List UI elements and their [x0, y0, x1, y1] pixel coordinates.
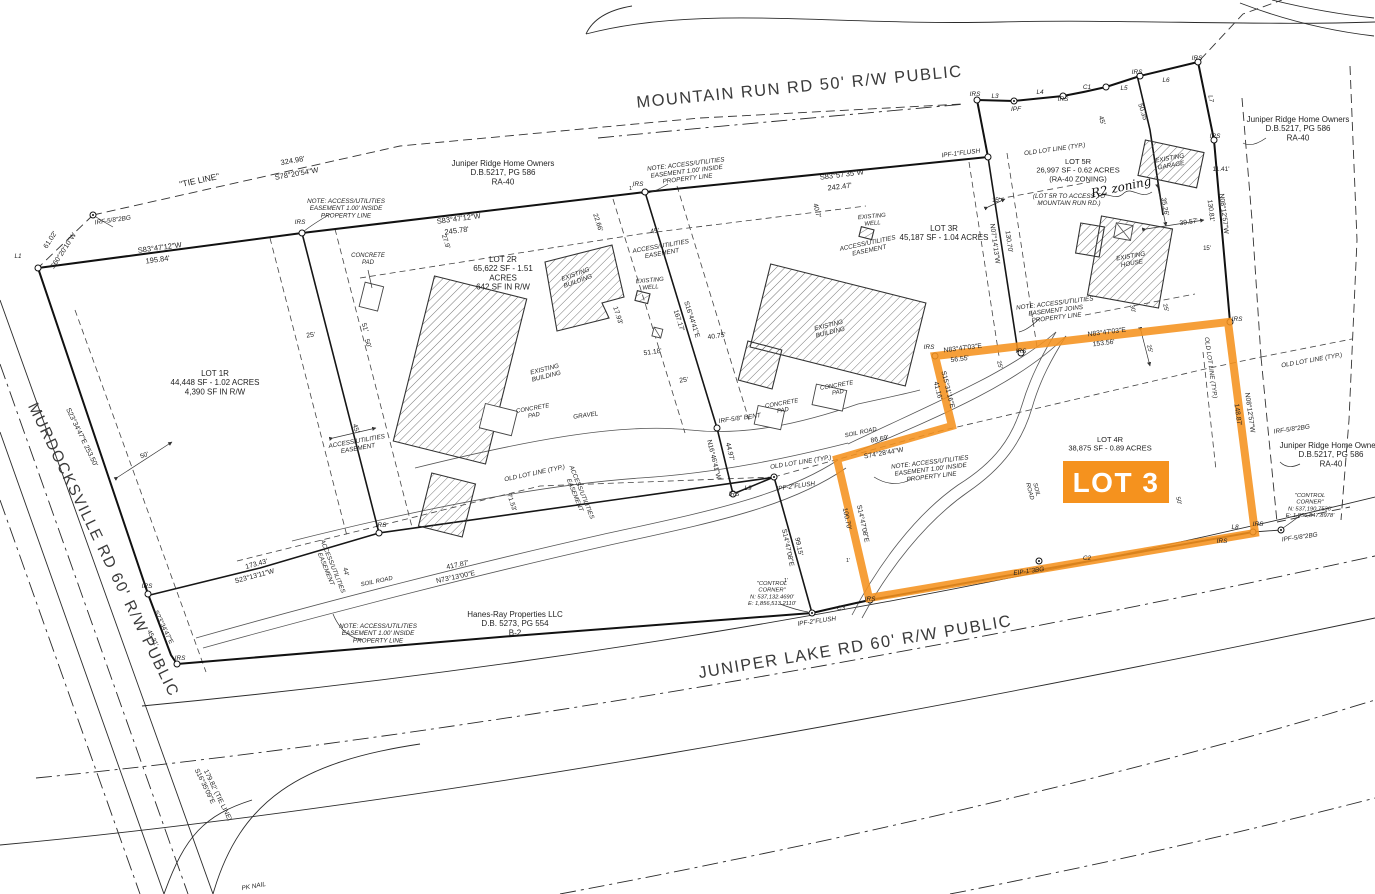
marker-label: IRS: [970, 91, 981, 98]
lot-label: LOT 4R38,875 SF - 0.89 ACRES: [1068, 435, 1151, 453]
lot-label: LOT 2R65,622 SF - 1.51ACRES642 SF IN R/W: [473, 255, 533, 292]
monument-dot: [92, 214, 94, 216]
bearing-label: 25': [995, 360, 1003, 369]
note-label: OLD LOT LINE (TYP.): [1024, 142, 1086, 158]
marker-label: IRS: [295, 219, 306, 226]
marker-label: IPF-2"FLUSH: [776, 480, 816, 492]
lot-label: LOT 1R44,448 SF - 1.02 ACRES4,390 SF IN …: [171, 369, 260, 396]
bearing-label: 45': [1097, 115, 1106, 126]
existing-building-lot3r-step: [738, 341, 782, 389]
bearing-label: 1': [846, 558, 850, 564]
bearing-label: 15': [1203, 246, 1211, 252]
marker-label: IRS: [924, 344, 935, 351]
note-label: NOTE: ACCESS/UTILITIESEASEMENT 1.00' INS…: [339, 623, 418, 644]
marker-label: IRS: [1016, 348, 1027, 355]
bearing-label: S83°57'35"W: [819, 167, 865, 181]
marker-label: L6: [1162, 77, 1170, 84]
bearing-label: 11.41': [1212, 166, 1229, 173]
marker-label: IRS: [729, 491, 740, 498]
marker-label: PK NAIL: [241, 881, 267, 892]
bearing-label: 30': [1128, 304, 1136, 313]
bearing-label: 71.53': [505, 493, 517, 512]
owner-label: Juniper Ridge Home OwnersD.B.5217, PG 58…: [1247, 115, 1350, 142]
road-label: JUNIPER LAKE RD 60' R/W PUBLIC: [697, 612, 1013, 682]
bearing-label: 1': [784, 578, 788, 584]
marker-label: IRS: [1132, 69, 1143, 76]
monument-point: [376, 530, 382, 536]
bearing-label: 17.93': [611, 306, 623, 326]
bearing-label: 25': [1161, 303, 1169, 312]
bearing-label: 61.02': [43, 230, 59, 250]
note-label: CONCRETEPAD: [351, 253, 386, 266]
bearing-label: 50': [1174, 496, 1182, 505]
note-label: CONCRETEPAD: [516, 403, 552, 422]
bearing-label: 167.17': [672, 309, 685, 332]
monument-dot: [811, 612, 813, 614]
note-label: OLD LOT LINE (TYP.): [504, 464, 566, 484]
bearing-label: 40.7': [811, 203, 821, 219]
lot-label: LOT 5R26,997 SF - 0.62 ACRES(RA-40 ZONIN…: [1036, 157, 1119, 183]
marker-label: L7: [1206, 95, 1214, 104]
marker-label: L9: [744, 485, 752, 492]
bearing-label: 35.26': [1159, 197, 1169, 216]
property-boundary: [38, 62, 1281, 664]
note-label: NOTE: ACCESS/UTILITIESEASEMENT 1.00' INS…: [891, 454, 972, 485]
monument-point: [642, 189, 648, 195]
note-label: SOILROAD: [1024, 481, 1041, 502]
monument-point: [1103, 84, 1109, 90]
bearing-label: 417.87': [446, 560, 470, 572]
note-label: GRAVEL: [573, 410, 599, 421]
note-label: NOTE: ACCESS/UTILITIESEASEMENT 1.00' INS…: [647, 156, 728, 187]
marker-label: IRS: [376, 522, 387, 529]
monument-dot: [1013, 100, 1015, 102]
lot-label: LOT 3R45,187 SF - 1.04 ACRES: [900, 224, 989, 242]
bearing-label: 44.97': [724, 442, 735, 461]
existing-building-lot2r-upper: [545, 245, 624, 331]
bearing-label: 15': [992, 198, 1000, 204]
bearing-label: 56.55': [950, 355, 969, 364]
house-window: [1114, 223, 1133, 241]
bearing-label: 44': [341, 567, 350, 577]
monument-dot: [773, 476, 775, 478]
bearing-label: 324.98': [280, 154, 306, 167]
owner-label: Juniper Ridge Home OwnersD.B.5217, PG 58…: [452, 159, 555, 186]
marker-label: C1: [1083, 84, 1092, 91]
note-label: ACCESS/UTILITIESEASEMENT: [560, 464, 595, 524]
bearing-label: 50.35': [1136, 103, 1148, 123]
note-label: NOTE: ACCESS/UTILITIESEASEMENT JOINSPROP…: [1016, 295, 1097, 326]
bearing-label: 130.81': [1206, 199, 1216, 222]
lot3-badge-label[interactable]: LOT 3: [1073, 467, 1160, 498]
marker-label: IRS: [1058, 96, 1069, 103]
bearing-label: 130.70': [1003, 230, 1013, 253]
bearing-label: 45': [650, 227, 660, 235]
marker-label: IRF-5/8"2BG: [94, 215, 131, 227]
bearing-label: 195.84': [145, 253, 171, 265]
monument-dot: [1280, 529, 1282, 531]
road-label: MOUNTAIN RUN RD 50' R/W PUBLIC: [636, 62, 964, 111]
survey-monuments: [35, 59, 1284, 667]
marker-label: IRS: [1210, 133, 1221, 140]
bearing-label: 40.75': [707, 332, 726, 341]
marker-label: IRS: [633, 181, 644, 188]
marker-label: C3: [837, 605, 846, 612]
bearing-label: N16°46'41"W: [705, 439, 723, 481]
marker-label: IRS: [142, 583, 153, 590]
bearing-label: 25': [306, 331, 316, 339]
bearing-label: 51.18': [643, 348, 662, 357]
marker-label: IRS: [865, 596, 876, 603]
marker-label: IRS: [1253, 521, 1264, 528]
marker-label: C2: [1083, 555, 1092, 562]
owner-label: Juniper Ridge Home OwnersD.B.5217, PG 58…: [1280, 441, 1375, 468]
leader-lines: [96, 138, 1302, 640]
marker-label: IRS: [1192, 55, 1203, 62]
note-label: EXISTINGWELL: [858, 213, 887, 228]
marker-label: L4: [1036, 89, 1044, 96]
small-utility-box: [652, 327, 663, 338]
road-label: MURDOCKSVILLE RD 60' R/W PUBLIC: [24, 400, 182, 700]
note-label: EXISTINGWELL: [636, 277, 665, 292]
bearing-label: N73°13'00"E: [435, 569, 476, 585]
bearing-label: 242.47': [827, 180, 853, 192]
bearing-label: S16°44'41"E: [682, 300, 702, 339]
marker-label: IRS: [175, 655, 186, 662]
existing-well-lot3r: [859, 227, 874, 240]
existing-house-wing: [1076, 223, 1105, 257]
note-label: OLD LOT LINE (TYP.): [1281, 352, 1343, 370]
note-label: "CONTROLCORNER"N: 537,190.7536'E: 1,856,…: [1286, 493, 1335, 519]
bearing-label: 22.66': [591, 213, 603, 233]
monument-point: [985, 154, 991, 160]
road-lines: [0, 0, 1375, 894]
note-label: ACCESS/UTILITIESEASEMENT: [631, 238, 691, 262]
existing-well-lot2r: [635, 291, 650, 304]
note-label: "CONTROLCORNER"N: 537,132.4690'E: 1,856,…: [748, 581, 797, 607]
existing-building-lot2r-small: [419, 473, 476, 537]
note-label: SOIL ROAD: [360, 576, 394, 589]
bearing-label: 153.56': [1092, 339, 1115, 349]
plat-figure: LOT 3 MOUNTAIN RUN RD 50' R/W PUBLICJUNI…: [0, 0, 1375, 894]
note-label: ACCESS/UTILITIESEASEMENT: [327, 433, 387, 457]
marker-label: IRS: [1232, 316, 1243, 323]
bearing-label: 50': [363, 338, 372, 349]
marker-label: IPF: [1011, 106, 1022, 113]
monument-point: [35, 265, 41, 271]
bearing-label: 39.57': [1179, 218, 1198, 227]
marker-label: IRF-5/8"2BG: [1273, 424, 1310, 436]
note-label: NOTE: ACCESS/UTILITIESEASEMENT 1.00' INS…: [307, 198, 386, 219]
existing-building-lot2r-main: [393, 276, 526, 464]
marker-label: L3: [991, 93, 999, 100]
marker-label: IPF-5/8"2BG: [1281, 532, 1318, 544]
marker-label: EIP-1"3BG: [1013, 566, 1045, 577]
monument-dot: [1038, 560, 1040, 562]
marker-label: L1: [14, 253, 22, 260]
note-label: EXISTINGBUILDING: [529, 363, 561, 384]
bearing-label: S78°20'54"W: [274, 165, 320, 182]
monument-point: [145, 591, 151, 597]
bearing-label: N08°12'57"W: [1218, 193, 1231, 235]
survey-plat-drawing: LOT 3 MOUNTAIN RUN RD 50' R/W PUBLICJUNI…: [0, 0, 1375, 894]
monument-point: [714, 425, 720, 431]
bearing-label: 25': [679, 376, 689, 384]
bearing-label: S83°47'12"W: [436, 211, 482, 226]
note-label: OLD LOT LINE (TYP.): [770, 454, 832, 471]
bearing-label: 50': [139, 451, 149, 460]
bearing-label: "TIE LINE": [179, 171, 221, 189]
marker-label: L8: [1231, 524, 1239, 531]
marker-label: L5: [1120, 85, 1128, 92]
marker-label: IRS: [1217, 538, 1228, 545]
monument-point: [299, 230, 305, 236]
soil-road-lines: [196, 332, 1066, 648]
